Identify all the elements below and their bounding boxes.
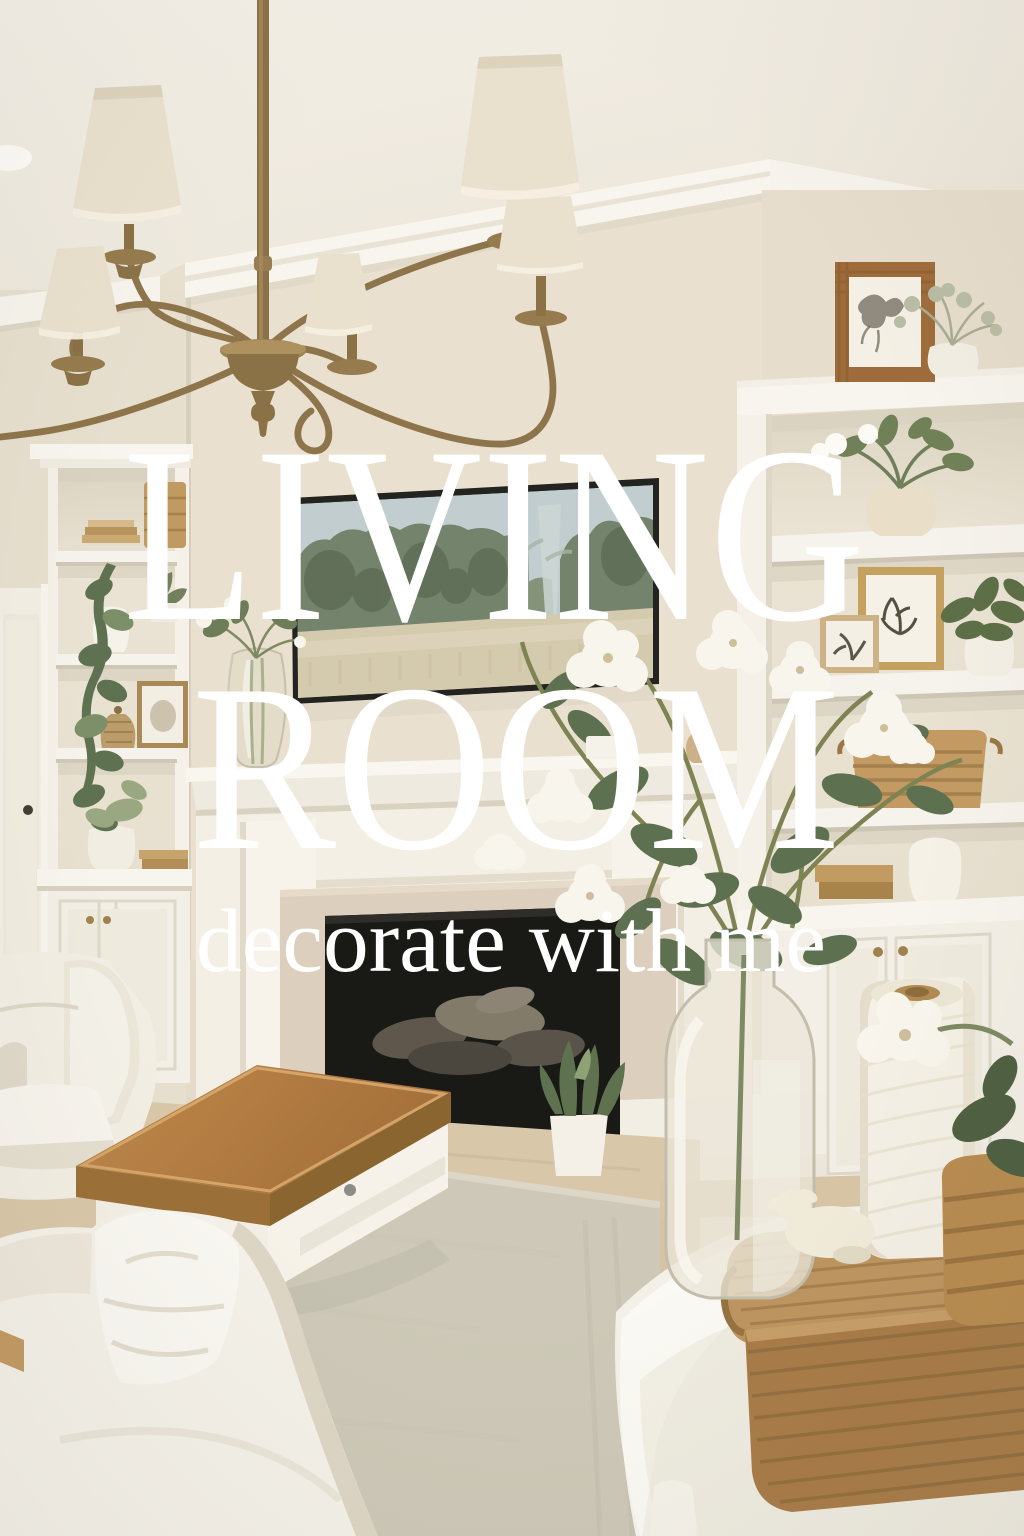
svg-text:ROOM: ROOM — [192, 635, 840, 900]
svg-text:LIVING: LIVING — [123, 396, 865, 674]
svg-text:decorate with me: decorate with me — [196, 892, 826, 991]
